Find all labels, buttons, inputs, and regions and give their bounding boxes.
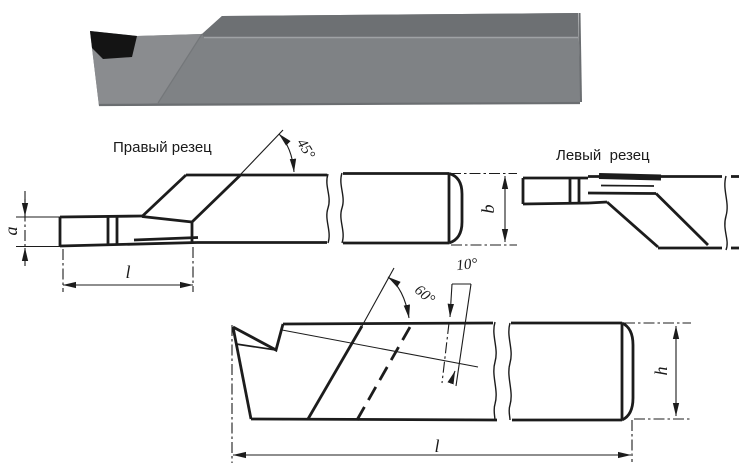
angle-45-annotation <box>240 130 294 175</box>
label-right-cutter: Правый резец <box>113 139 212 156</box>
break-line <box>327 174 329 243</box>
tool-top-face <box>202 13 578 37</box>
break-line <box>509 323 511 420</box>
dimension-a <box>16 191 62 268</box>
break-line <box>341 173 343 243</box>
label-left-cutter: Левый резец <box>556 147 650 164</box>
tool-photo <box>90 13 581 106</box>
label-dim-l-front: l <box>119 262 137 282</box>
side-view <box>233 322 633 421</box>
angle-60-annotation <box>362 268 409 326</box>
top-view-left-cutter <box>523 176 739 250</box>
top-view-right-cutter <box>60 173 462 246</box>
insert-plate-edge <box>599 176 661 178</box>
break-line <box>725 176 727 250</box>
label-dim-l-total: l <box>428 436 446 456</box>
angle-10-annotation <box>442 284 471 386</box>
label-dim-b: b <box>478 199 498 219</box>
break-line <box>494 322 496 421</box>
label-dim-a: a <box>1 221 21 241</box>
technical-drawing <box>0 0 739 473</box>
drawing-sheet: Правый резец Левый резец 45° a l b 60° 1… <box>0 0 739 473</box>
label-dim-h: h <box>651 361 671 381</box>
